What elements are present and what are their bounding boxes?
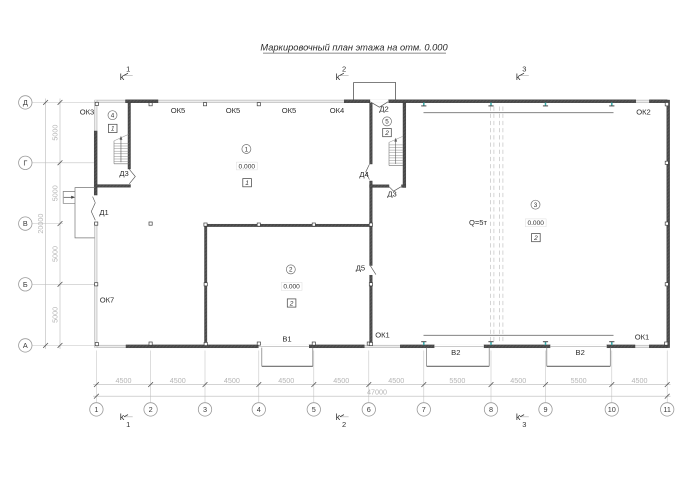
svg-text:k: k (336, 412, 341, 422)
svg-text:7: 7 (422, 405, 426, 414)
svg-text:8: 8 (489, 405, 493, 414)
svg-text:4500: 4500 (388, 376, 404, 385)
svg-text:1: 1 (94, 405, 98, 414)
svg-text:k: k (516, 412, 521, 422)
svg-text:ОК5: ОК5 (282, 106, 297, 115)
svg-text:k: k (516, 72, 521, 82)
svg-text:k: k (120, 412, 125, 422)
svg-text:1: 1 (126, 64, 130, 73)
svg-text:1: 1 (245, 146, 249, 153)
svg-text:Д4: Д4 (359, 170, 368, 179)
svg-text:2: 2 (289, 300, 294, 307)
svg-text:20000: 20000 (36, 214, 45, 234)
svg-text:k: k (336, 72, 341, 82)
svg-text:11: 11 (663, 405, 671, 414)
svg-text:4500: 4500 (278, 376, 294, 385)
svg-text:47000: 47000 (367, 387, 387, 396)
svg-text:4500: 4500 (632, 376, 648, 385)
svg-text:Д1: Д1 (99, 208, 108, 217)
svg-text:3: 3 (522, 64, 526, 73)
svg-text:4500: 4500 (170, 376, 186, 385)
svg-text:3: 3 (522, 420, 526, 429)
svg-text:Г: Г (23, 158, 27, 167)
svg-text:5: 5 (385, 119, 389, 126)
svg-text:Q=5т: Q=5т (469, 218, 488, 227)
svg-text:В: В (23, 219, 28, 228)
svg-text:2: 2 (342, 64, 346, 73)
svg-text:2: 2 (533, 235, 538, 242)
svg-text:5000: 5000 (51, 307, 60, 323)
svg-text:4: 4 (111, 113, 115, 120)
svg-text:1: 1 (126, 420, 130, 429)
svg-text:Д: Д (23, 98, 28, 107)
svg-text:3: 3 (203, 405, 207, 414)
svg-text:3: 3 (534, 202, 538, 209)
svg-text:5500: 5500 (449, 376, 465, 385)
svg-text:9: 9 (543, 405, 547, 414)
svg-text:А: А (23, 341, 28, 350)
svg-text:1: 1 (245, 180, 249, 187)
svg-text:4500: 4500 (224, 376, 240, 385)
svg-text:ОК7: ОК7 (100, 295, 115, 304)
svg-text:k: k (120, 72, 125, 82)
svg-text:5000: 5000 (51, 246, 60, 262)
svg-text:В1: В1 (282, 335, 291, 344)
svg-text:0.000: 0.000 (527, 220, 544, 227)
svg-text:В2: В2 (451, 348, 460, 357)
svg-text:Д3: Д3 (387, 189, 396, 198)
svg-text:ОК1: ОК1 (375, 330, 390, 339)
svg-text:Б: Б (23, 280, 28, 289)
svg-text:10: 10 (608, 405, 616, 414)
svg-text:2: 2 (342, 420, 346, 429)
svg-text:4: 4 (257, 405, 261, 414)
svg-text:5000: 5000 (51, 185, 60, 201)
svg-text:ОК2: ОК2 (636, 107, 651, 116)
svg-text:2: 2 (149, 405, 153, 414)
svg-text:ОК1: ОК1 (635, 332, 650, 341)
svg-text:ОК5: ОК5 (226, 106, 241, 115)
svg-text:5: 5 (312, 405, 316, 414)
svg-text:В2: В2 (576, 348, 585, 357)
svg-text:4500: 4500 (333, 376, 349, 385)
svg-text:Д5: Д5 (356, 263, 365, 272)
svg-text:1: 1 (111, 126, 115, 133)
svg-text:ОК4: ОК4 (330, 106, 345, 115)
svg-text:5500: 5500 (571, 376, 587, 385)
svg-text:4500: 4500 (116, 376, 132, 385)
svg-text:0.000: 0.000 (283, 284, 300, 291)
svg-text:Маркировочный план этажа на от: Маркировочный план этажа на отм. 0.000 (260, 43, 448, 53)
svg-text:5000: 5000 (51, 125, 60, 141)
svg-text:4500: 4500 (510, 376, 526, 385)
svg-text:6: 6 (367, 405, 371, 414)
svg-text:Д3: Д3 (119, 169, 128, 178)
svg-text:0.000: 0.000 (239, 163, 256, 170)
svg-text:2: 2 (384, 130, 389, 137)
svg-text:2: 2 (289, 267, 293, 274)
svg-text:Д2: Д2 (379, 105, 388, 114)
svg-text:ОК5: ОК5 (171, 106, 186, 115)
svg-text:ОК3: ОК3 (80, 108, 95, 117)
